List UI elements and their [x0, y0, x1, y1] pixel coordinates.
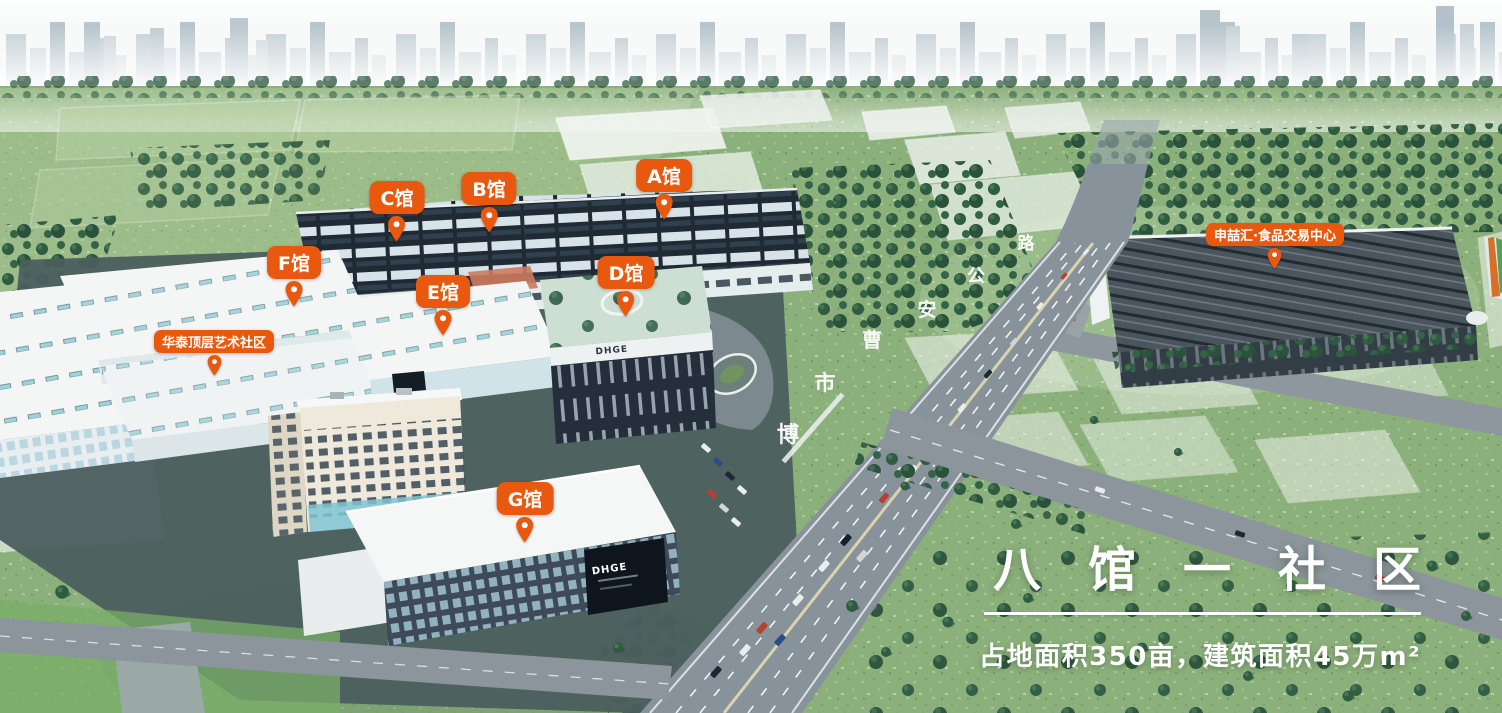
location-pin-icon [655, 194, 673, 220]
pin-g-hall-label: G馆 [497, 482, 554, 515]
road-name-char: 曹 [862, 328, 882, 352]
pin-b-hall-label: B馆 [461, 172, 516, 205]
location-pin-icon [617, 291, 635, 317]
pin-huatai-community[interactable]: 华泰顶层艺术社区 [154, 330, 274, 376]
title-block: 八馆一社区 占地面积350亩，建筑面积45万m² [979, 544, 1421, 673]
location-pin-icon [480, 207, 498, 233]
location-pin-icon [285, 281, 303, 307]
pin-f-hall-label: F馆 [267, 246, 321, 279]
road-name-char: 博 [777, 422, 799, 448]
pin-huatai-label: 华泰顶层艺术社区 [154, 330, 274, 353]
pin-c-hall-label: C馆 [370, 181, 425, 214]
dome-structure [1466, 311, 1488, 325]
location-pin-icon [1267, 248, 1282, 269]
location-pin-icon [434, 310, 452, 336]
area-subtitle: 占地面积350亩，建筑面积45万m² [979, 636, 1421, 673]
pin-c-hall[interactable]: C馆 [370, 181, 425, 242]
pin-a-hall[interactable]: A馆 [636, 159, 692, 220]
pin-g-hall[interactable]: G馆 [497, 482, 554, 543]
pin-a-hall-label: A馆 [636, 159, 692, 192]
pin-d-hall-label: D馆 [598, 256, 655, 289]
pin-shenzhehui-center[interactable]: 申喆汇·食品交易中心 [1206, 223, 1344, 269]
pin-shenzhehui-label: 申喆汇·食品交易中心 [1206, 223, 1344, 246]
road-name-char: 路 [1018, 233, 1036, 254]
location-pin-icon [206, 355, 221, 376]
aerial-rendering-poster: 博 市 曹 安 公 路 [0, 0, 1502, 713]
location-pin-icon [388, 216, 406, 242]
pin-e-hall-label: E馆 [416, 275, 470, 308]
main-slogan: 八馆一社区 [993, 544, 1468, 597]
location-pin-icon [516, 517, 534, 543]
pin-e-hall[interactable]: E馆 [416, 275, 470, 336]
road-name-char: 安 [917, 298, 936, 321]
road-name-char: 市 [815, 371, 836, 395]
pin-f-hall[interactable]: F馆 [267, 246, 321, 307]
title-underline [984, 612, 1421, 615]
pin-d-hall[interactable]: D馆 [598, 256, 655, 317]
road-name-char: 公 [967, 266, 985, 287]
pin-b-hall[interactable]: B馆 [461, 172, 516, 233]
